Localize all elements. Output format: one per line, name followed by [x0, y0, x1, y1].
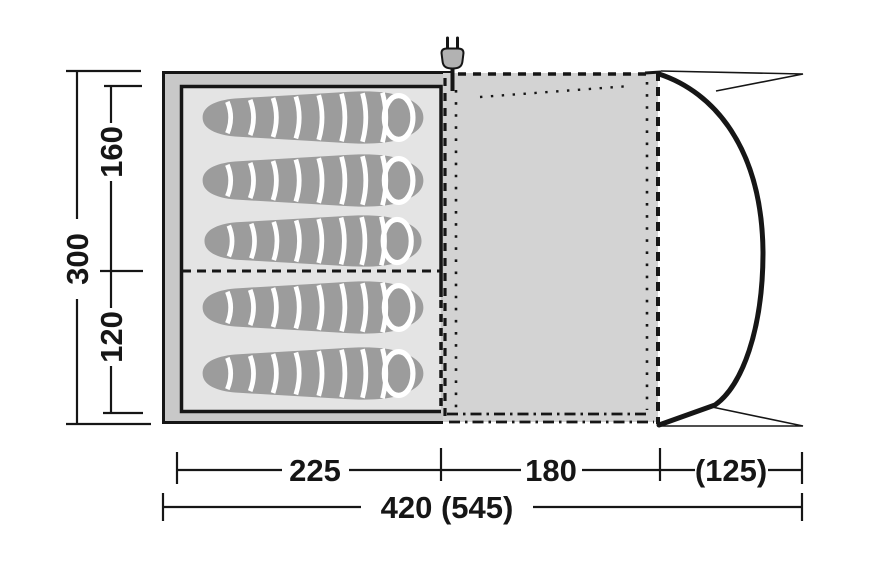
living-area-floor [443, 73, 658, 422]
sleeping-bag [203, 281, 424, 333]
sleeping-width-label: 225 [289, 453, 341, 488]
canopy-pole-curve [659, 74, 763, 425]
cabin-bottom-depth-label: 120 [94, 311, 129, 363]
sleeping-bag [204, 215, 421, 266]
overall-length-label: 420 (545) [381, 490, 514, 525]
plug-body [442, 49, 464, 69]
cabin-top-depth-label: 160 [94, 126, 129, 178]
sleeping-bag [203, 347, 424, 399]
tent-floorplan-page: 300 160 120 225 180 (125) 420 (545) [0, 0, 895, 577]
bottom-dimensions: 225 180 (125) 420 (545) [163, 448, 802, 525]
left-dimensions: 300 160 120 [60, 71, 151, 424]
sleeping-bag [203, 154, 424, 206]
canopy-width-label: (125) [695, 453, 767, 488]
sleeping-bag [203, 91, 424, 143]
guy-line-top [661, 71, 803, 91]
depth-total-label: 300 [60, 233, 95, 285]
tent-floorplan-diagram: 300 160 120 225 180 (125) 420 (545) [0, 0, 895, 577]
living-width-label: 180 [525, 453, 577, 488]
